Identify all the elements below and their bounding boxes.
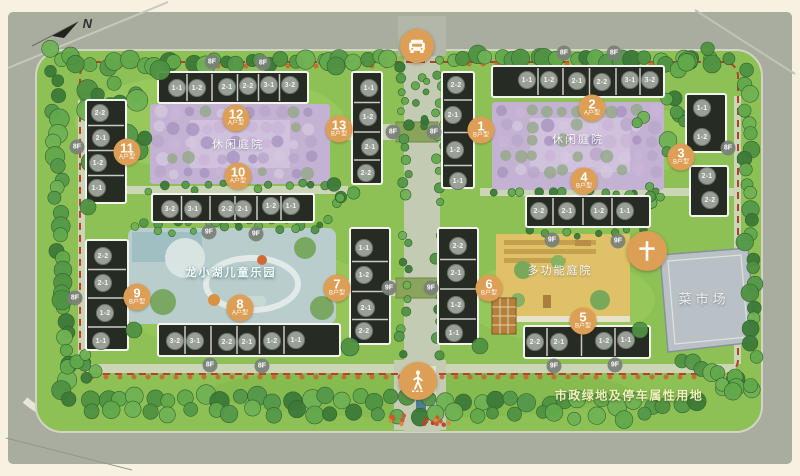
tree xyxy=(527,104,538,115)
tree xyxy=(306,406,324,424)
tree xyxy=(618,152,630,164)
tree xyxy=(384,375,389,380)
tree xyxy=(736,233,754,251)
tree xyxy=(632,118,642,128)
tree xyxy=(515,188,524,197)
tree xyxy=(568,412,581,425)
tree xyxy=(636,375,641,380)
tree xyxy=(107,76,121,90)
tree xyxy=(274,151,285,162)
tree xyxy=(186,123,199,136)
tree xyxy=(645,182,653,190)
tree xyxy=(574,233,580,239)
tree xyxy=(544,150,555,161)
tree xyxy=(370,375,375,380)
tree xyxy=(206,226,212,232)
tree xyxy=(655,399,670,414)
tree xyxy=(435,56,443,64)
tree xyxy=(482,375,487,380)
tree xyxy=(544,136,554,146)
tree xyxy=(573,151,584,162)
tree xyxy=(508,189,516,197)
tree xyxy=(650,166,662,178)
tree xyxy=(511,49,529,67)
tree xyxy=(745,213,758,226)
tree xyxy=(262,139,272,149)
tree xyxy=(625,393,642,410)
tree xyxy=(300,375,305,380)
tree xyxy=(589,121,599,131)
tree xyxy=(188,375,193,380)
tree xyxy=(258,375,263,380)
building-7-slab xyxy=(350,228,390,344)
tree xyxy=(515,150,528,163)
tree xyxy=(169,170,179,180)
tree xyxy=(61,392,76,407)
tree xyxy=(557,107,567,117)
tree xyxy=(638,407,651,420)
tree xyxy=(60,344,72,356)
tree xyxy=(57,329,73,345)
tree xyxy=(399,350,407,358)
tree xyxy=(291,122,301,132)
tree xyxy=(455,51,469,65)
tree xyxy=(327,57,345,75)
tree xyxy=(341,338,359,356)
tree xyxy=(411,82,419,90)
tree xyxy=(602,119,614,131)
tree xyxy=(517,394,535,412)
tree xyxy=(159,407,175,423)
tree xyxy=(314,375,319,380)
tree xyxy=(503,391,517,405)
tree xyxy=(139,219,148,228)
tree xyxy=(102,401,120,419)
tree xyxy=(548,51,563,66)
tree xyxy=(230,136,241,147)
tree xyxy=(588,407,606,425)
tree xyxy=(750,351,763,364)
tree xyxy=(146,375,151,380)
tree xyxy=(470,409,485,424)
car-icon xyxy=(405,34,429,58)
tree xyxy=(662,147,672,157)
planted-median xyxy=(396,278,438,298)
tree xyxy=(248,154,257,163)
tree xyxy=(611,229,619,237)
tree xyxy=(345,54,361,70)
tree xyxy=(399,258,407,266)
tree xyxy=(322,407,336,421)
tree xyxy=(571,118,583,130)
tree xyxy=(52,290,72,310)
tree xyxy=(608,375,613,380)
tree xyxy=(169,230,176,237)
tree xyxy=(510,375,515,380)
tree xyxy=(161,394,175,408)
tree xyxy=(678,54,696,72)
tree xyxy=(527,150,537,160)
tree xyxy=(670,106,683,119)
tree xyxy=(620,134,634,148)
site-plan: 2-22-11-21-11-11-22-12-23-13-21-11-22-12… xyxy=(0,0,800,476)
tree xyxy=(701,42,715,56)
tree xyxy=(556,133,570,147)
tree xyxy=(594,375,599,380)
tree xyxy=(289,153,300,164)
tree xyxy=(571,106,583,118)
tree xyxy=(404,120,415,131)
tree xyxy=(233,389,247,403)
tree xyxy=(398,89,405,96)
tree xyxy=(724,383,741,400)
tree xyxy=(497,167,508,178)
site-plan-base xyxy=(0,0,800,476)
tree xyxy=(226,151,240,165)
north-label: N xyxy=(83,16,92,31)
tree xyxy=(200,168,210,178)
tree xyxy=(496,375,501,380)
cross-icon xyxy=(634,238,660,264)
tree xyxy=(434,133,441,140)
tree xyxy=(594,391,610,407)
tree xyxy=(557,187,566,196)
pergola xyxy=(492,298,516,334)
tree xyxy=(527,122,539,134)
tree xyxy=(422,422,426,426)
tree xyxy=(436,198,443,205)
tree xyxy=(454,375,459,380)
tree xyxy=(235,223,242,230)
tree xyxy=(191,187,198,194)
tree xyxy=(742,320,759,337)
building-13-slab xyxy=(352,72,382,184)
tree xyxy=(399,134,409,144)
tree xyxy=(383,389,398,404)
tree xyxy=(348,187,360,199)
building-5-slab xyxy=(524,326,650,358)
tree xyxy=(647,150,658,161)
tree xyxy=(261,122,273,134)
tree xyxy=(744,186,757,199)
tree xyxy=(252,230,261,239)
tree xyxy=(586,187,594,195)
tree xyxy=(433,71,442,80)
tree xyxy=(402,307,411,316)
tree xyxy=(125,401,141,417)
tree xyxy=(405,265,413,273)
tree xyxy=(185,137,196,148)
tree xyxy=(207,53,220,66)
tree xyxy=(402,414,406,418)
tree xyxy=(272,375,277,380)
tree xyxy=(202,375,207,380)
tree xyxy=(220,223,229,232)
tree xyxy=(169,138,182,151)
tree xyxy=(242,165,256,179)
tree xyxy=(306,151,317,162)
tree xyxy=(397,108,404,115)
tree xyxy=(276,226,284,234)
tree xyxy=(747,261,760,274)
tree xyxy=(401,155,411,165)
tree xyxy=(478,50,492,64)
tree xyxy=(541,230,549,238)
tree xyxy=(432,109,440,117)
tree xyxy=(398,178,408,188)
building-12-slab xyxy=(158,72,308,103)
tree xyxy=(259,105,271,117)
tree xyxy=(242,107,254,119)
tree xyxy=(615,411,633,429)
tree xyxy=(81,372,92,383)
tree xyxy=(394,331,404,341)
tree xyxy=(245,400,261,416)
tree xyxy=(742,336,758,352)
tree xyxy=(678,375,683,380)
building-1-slab xyxy=(442,72,474,188)
tree xyxy=(552,375,557,380)
building-11-slab xyxy=(86,100,126,203)
tree xyxy=(232,122,243,133)
tree xyxy=(215,141,224,150)
tree xyxy=(307,181,314,188)
tree xyxy=(169,108,181,120)
tree xyxy=(185,107,195,117)
tree xyxy=(579,186,586,193)
tree xyxy=(167,153,177,163)
tree xyxy=(637,51,651,65)
tree xyxy=(227,56,243,72)
tree xyxy=(216,375,221,380)
tree xyxy=(220,405,238,423)
tree xyxy=(692,375,697,380)
tree xyxy=(400,418,404,422)
tree xyxy=(515,164,526,175)
tree xyxy=(244,375,249,380)
tree xyxy=(438,419,442,423)
building-9-slab xyxy=(86,240,128,350)
tree xyxy=(512,121,522,131)
tree xyxy=(574,167,585,178)
tree xyxy=(632,163,645,176)
tree xyxy=(468,375,473,380)
tree xyxy=(126,322,142,338)
tree xyxy=(616,106,627,117)
tree xyxy=(213,120,226,133)
tree xyxy=(182,181,190,189)
tree xyxy=(271,121,285,135)
tree xyxy=(324,215,333,224)
tree xyxy=(563,228,571,236)
tree xyxy=(396,73,406,83)
tree xyxy=(528,166,540,178)
tree xyxy=(572,134,583,145)
tree xyxy=(587,167,597,177)
tree xyxy=(633,151,643,161)
tree xyxy=(104,375,109,380)
tree xyxy=(288,106,300,118)
tree xyxy=(557,164,568,175)
tree xyxy=(201,136,214,149)
tree xyxy=(405,239,413,247)
tree xyxy=(379,50,397,68)
tree xyxy=(423,89,429,95)
tree xyxy=(507,407,521,421)
tree xyxy=(421,115,428,122)
tree xyxy=(632,322,648,338)
tree xyxy=(51,159,66,174)
tree xyxy=(490,189,497,196)
tree xyxy=(48,191,61,204)
tree xyxy=(371,408,384,421)
pedestrian-entrance-badge xyxy=(399,362,437,400)
tree xyxy=(131,223,139,231)
tree xyxy=(303,108,312,117)
tree xyxy=(538,375,543,380)
tree xyxy=(132,375,137,380)
tree xyxy=(235,181,243,189)
tree xyxy=(264,181,271,188)
tree xyxy=(80,349,91,360)
tree xyxy=(431,154,441,164)
tree xyxy=(51,88,65,102)
tree xyxy=(442,423,446,427)
tree xyxy=(305,135,317,147)
tree xyxy=(317,387,334,404)
tree xyxy=(703,55,721,73)
tree xyxy=(738,104,751,117)
tree xyxy=(648,121,662,135)
tree xyxy=(399,422,403,426)
tree xyxy=(160,375,165,380)
tree xyxy=(154,227,162,235)
building-3-slab-south xyxy=(690,166,728,216)
tree xyxy=(167,122,180,135)
tree xyxy=(740,163,753,176)
tree xyxy=(435,422,439,426)
tree xyxy=(411,408,429,426)
tree xyxy=(723,53,735,65)
tree xyxy=(744,127,757,140)
tree xyxy=(160,181,169,190)
tree xyxy=(296,50,315,69)
tree xyxy=(302,123,314,135)
tree xyxy=(496,105,507,116)
tree xyxy=(742,85,759,102)
tree xyxy=(566,375,571,380)
tree xyxy=(83,58,97,72)
building-10-slab xyxy=(152,194,314,222)
tree xyxy=(603,135,617,149)
building-6-slab xyxy=(438,228,478,344)
tree xyxy=(292,169,302,179)
tree xyxy=(286,182,294,190)
tree xyxy=(299,179,307,187)
tree xyxy=(289,140,298,149)
tree xyxy=(687,392,706,411)
tree xyxy=(498,136,510,148)
tree xyxy=(266,407,282,423)
tree xyxy=(569,391,586,408)
tree xyxy=(174,375,179,380)
tree xyxy=(391,416,395,420)
tree xyxy=(487,391,505,409)
tree xyxy=(138,131,152,145)
tree xyxy=(559,120,569,130)
tree xyxy=(255,222,263,230)
tree xyxy=(398,231,406,239)
building-2-slab xyxy=(492,66,664,97)
building-3-slab-north xyxy=(686,94,726,152)
tree xyxy=(403,281,411,289)
tree xyxy=(205,181,212,188)
tree xyxy=(740,63,754,77)
tree xyxy=(404,296,411,303)
tree xyxy=(400,189,411,200)
tree xyxy=(215,166,225,176)
tree xyxy=(245,136,258,149)
tree xyxy=(80,199,96,215)
tree xyxy=(342,375,347,380)
tree xyxy=(487,407,499,419)
tree xyxy=(560,152,571,163)
tree xyxy=(421,123,428,130)
tree xyxy=(228,168,240,180)
tree xyxy=(515,108,525,118)
tree xyxy=(232,109,244,121)
tree xyxy=(588,135,599,146)
tree xyxy=(45,65,57,77)
tree xyxy=(288,400,305,417)
tree xyxy=(182,151,195,164)
tree xyxy=(447,421,451,425)
tree xyxy=(336,193,345,202)
tree xyxy=(445,403,463,421)
tree xyxy=(271,135,283,147)
tree xyxy=(545,404,563,422)
tree xyxy=(301,167,314,180)
tree xyxy=(105,53,123,71)
tree xyxy=(664,375,669,380)
tree xyxy=(511,134,523,146)
tree xyxy=(274,169,284,179)
pedestrian-icon xyxy=(405,368,431,394)
tree xyxy=(230,375,235,380)
tree xyxy=(217,109,226,118)
tree xyxy=(541,119,555,133)
building-4-slab xyxy=(526,196,650,227)
tree xyxy=(580,375,585,380)
tree xyxy=(150,60,170,80)
tree xyxy=(190,228,196,234)
tree xyxy=(184,402,198,416)
tree xyxy=(184,167,193,176)
tree xyxy=(424,418,428,422)
tree xyxy=(327,178,341,192)
tree xyxy=(200,106,212,118)
tree xyxy=(401,143,409,151)
tree xyxy=(143,404,158,419)
tree xyxy=(601,166,613,178)
tree xyxy=(118,375,123,380)
tree xyxy=(544,166,556,178)
tree xyxy=(622,375,627,380)
tree xyxy=(527,135,538,146)
tree xyxy=(741,284,759,302)
tree xyxy=(276,106,289,119)
tree xyxy=(744,379,758,393)
